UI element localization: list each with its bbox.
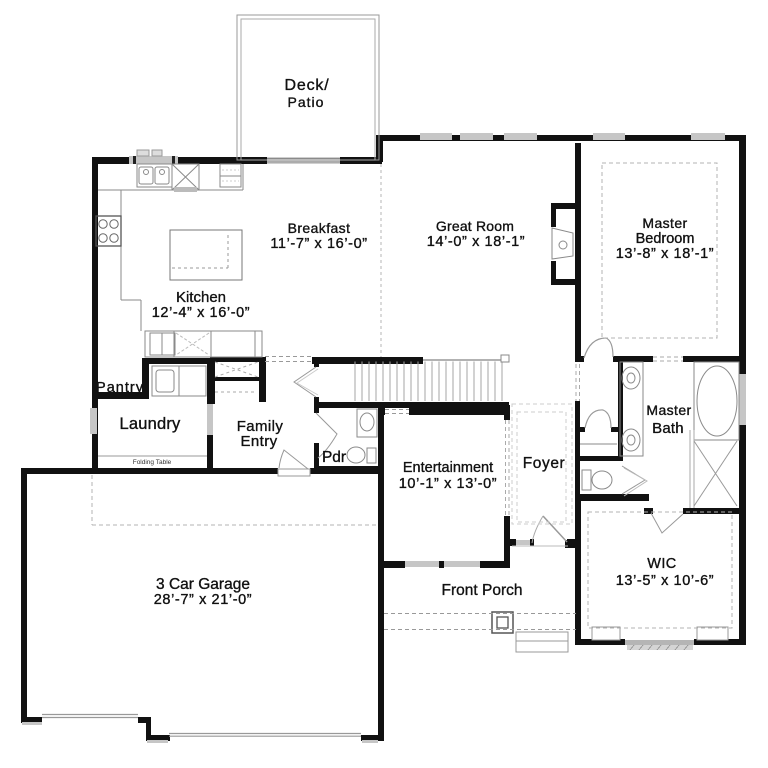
svg-text:Front Porch: Front Porch bbox=[442, 582, 523, 599]
svg-text:Master: Master bbox=[646, 402, 691, 418]
svg-text:Foyer: Foyer bbox=[523, 455, 566, 472]
svg-text:Entry: Entry bbox=[240, 433, 277, 450]
svg-text:Folding Table: Folding Table bbox=[133, 459, 172, 466]
svg-text:3 Car Garage: 3 Car Garage bbox=[156, 576, 250, 593]
svg-text:Patio: Patio bbox=[288, 94, 325, 110]
svg-text:Entertainment: Entertainment bbox=[403, 460, 493, 476]
svg-text:Bath: Bath bbox=[652, 420, 684, 437]
svg-text:13’-8” x 18’-1”: 13’-8” x 18’-1” bbox=[616, 246, 714, 262]
svg-text:Great Room: Great Room bbox=[436, 218, 514, 234]
svg-text:14’-0” x 18’-1”: 14’-0” x 18’-1” bbox=[427, 234, 525, 250]
svg-text:Kitchen: Kitchen bbox=[176, 289, 226, 306]
svg-text:12’-4” x 16’-0”: 12’-4” x 16’-0” bbox=[152, 305, 250, 321]
svg-text:Breakfast: Breakfast bbox=[288, 220, 351, 236]
svg-text:Pantry: Pantry bbox=[96, 380, 144, 396]
svg-text:WIC: WIC bbox=[647, 556, 676, 572]
svg-text:Bedroom: Bedroom bbox=[636, 231, 695, 247]
svg-text:10’-1” x 13’-0”: 10’-1” x 13’-0” bbox=[399, 476, 497, 492]
svg-text:Master: Master bbox=[642, 215, 687, 231]
svg-text:28’-7” x 21’-0”: 28’-7” x 21’-0” bbox=[154, 592, 252, 608]
svg-text:Deck/: Deck/ bbox=[285, 77, 330, 94]
svg-text:13’-5” x 10’-6”: 13’-5” x 10’-6” bbox=[616, 573, 714, 589]
svg-text:Pdr: Pdr bbox=[322, 449, 346, 466]
svg-text:Laundry: Laundry bbox=[119, 415, 181, 433]
svg-text:11’-7” x 16’-0”: 11’-7” x 16’-0” bbox=[270, 236, 367, 252]
